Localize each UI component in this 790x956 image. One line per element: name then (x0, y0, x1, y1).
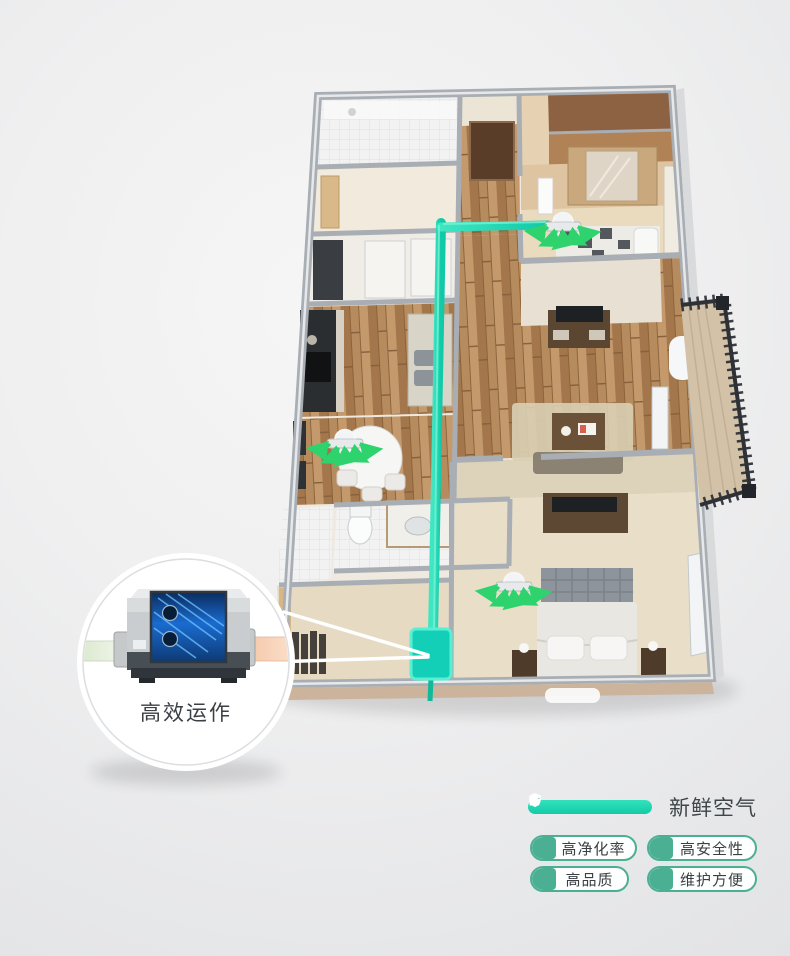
nightstand (641, 648, 666, 675)
badge-safety: 高安全性 (647, 835, 757, 861)
fresh-air-legend-row: 新鲜空气 (527, 792, 757, 822)
ventilation-unit (411, 629, 451, 679)
uv-filter-window (151, 592, 226, 662)
duct-exhaust-stub (430, 678, 431, 701)
living-window (652, 387, 668, 449)
fresh-air-label: 新鲜空气 (669, 792, 757, 822)
master-bed (537, 568, 637, 686)
shield-icon (649, 837, 673, 859)
nightstand (512, 650, 537, 677)
entry-door (470, 122, 514, 180)
leaf-icon (532, 837, 556, 859)
scene: 高效运作 新鲜空气 高净化率 高安全性 (0, 0, 790, 956)
thumbs-up-icon (532, 868, 556, 890)
badge-label: 高品质 (556, 869, 627, 890)
badge-label: 高净化率 (556, 838, 635, 859)
doormat (545, 688, 600, 703)
fresh-air-line (528, 800, 652, 814)
badge-quality: 高品质 (530, 866, 629, 892)
badge-label: 高安全性 (673, 838, 755, 859)
legend: 新鲜空气 高净化率 高安全性 (527, 792, 757, 897)
bedroom-2 (521, 89, 682, 262)
badge-row-1: 高净化率 高安全性 (527, 835, 757, 861)
bathroom-top (317, 95, 461, 168)
duct-branch-bedroom-2 (441, 225, 548, 227)
badge-purification: 高净化率 (530, 835, 637, 861)
badge-row-2: 高品质 维护方便 (527, 866, 757, 892)
badge-maintenance: 维护方便 (647, 866, 757, 892)
callout-label: 高效运作 (106, 697, 266, 727)
floorplan (277, 88, 724, 700)
pipe-icon (649, 868, 673, 890)
badge-label: 维护方便 (673, 869, 755, 890)
bedroom-2-door (538, 178, 553, 214)
kitchen (297, 303, 474, 417)
